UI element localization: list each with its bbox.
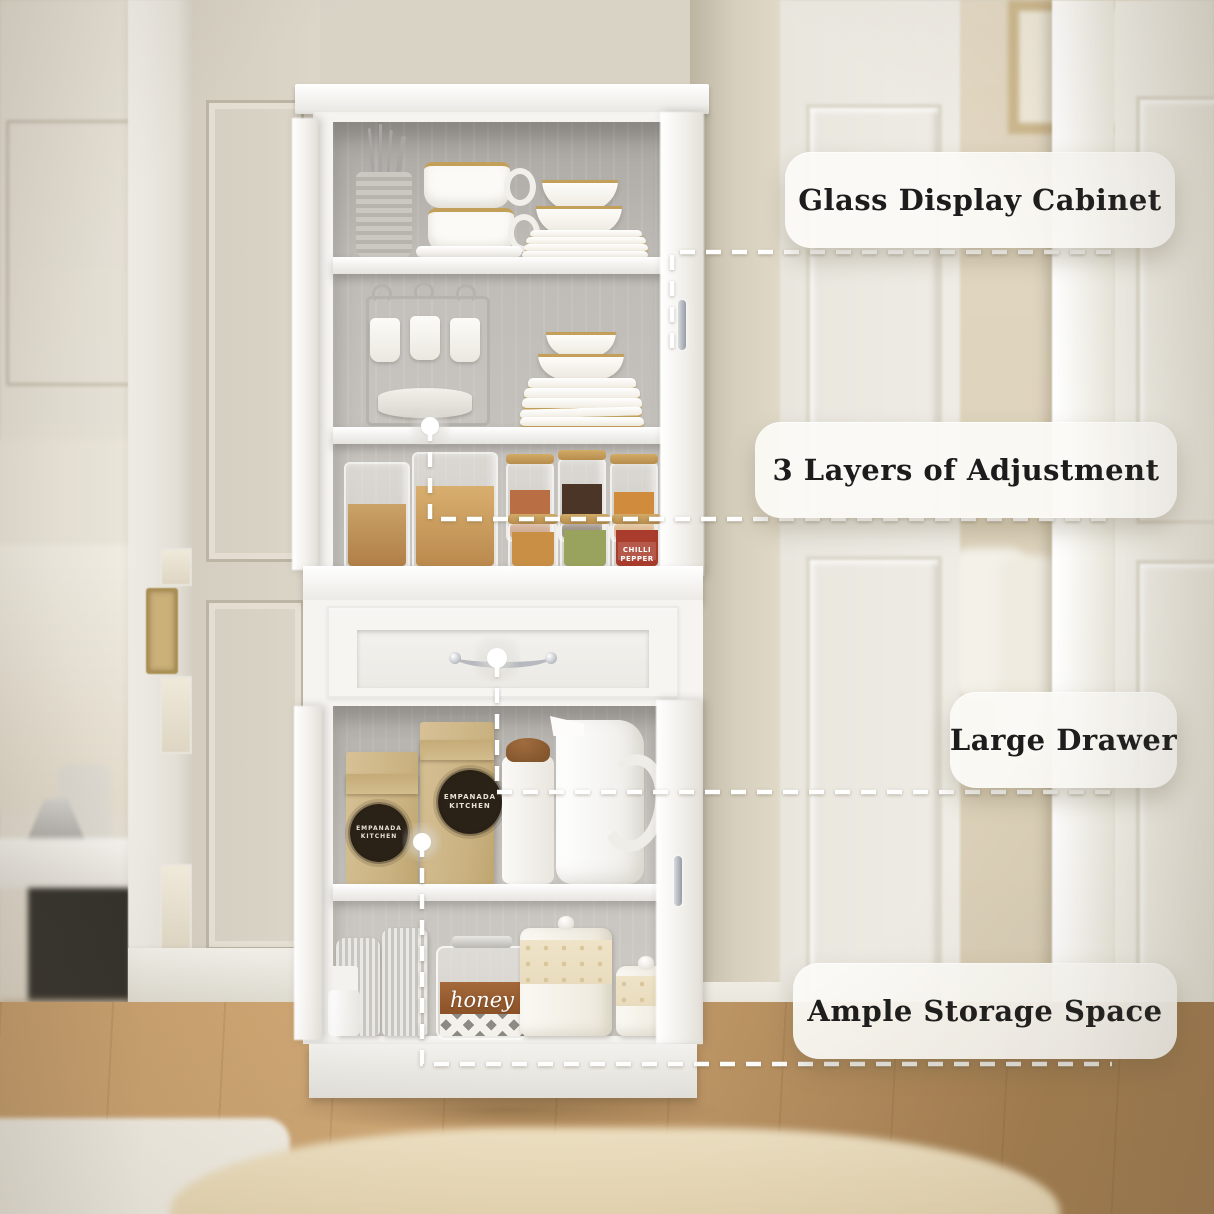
callout-glass-display-cabinet: Glass Display Cabinet <box>785 152 1175 248</box>
callout-3-layers-adjustment: 3 Layers of Adjustment <box>755 422 1177 518</box>
connector-lines <box>422 252 1112 1064</box>
callout-label: Large Drawer <box>950 723 1177 757</box>
connector-glass-cabinet <box>672 252 1112 348</box>
callout-label: 3 Layers of Adjustment <box>772 453 1159 487</box>
product-annotation-scene: CHILLI PEPPER EMPANADA KITCHEN EMPANADA … <box>0 0 1214 1214</box>
callout-label: Ample Storage Space <box>807 994 1162 1028</box>
callout-large-drawer: Large Drawer <box>950 692 1177 788</box>
callout-ample-storage-space: Ample Storage Space <box>793 963 1177 1059</box>
callout-label: Glass Display Cabinet <box>798 183 1161 217</box>
